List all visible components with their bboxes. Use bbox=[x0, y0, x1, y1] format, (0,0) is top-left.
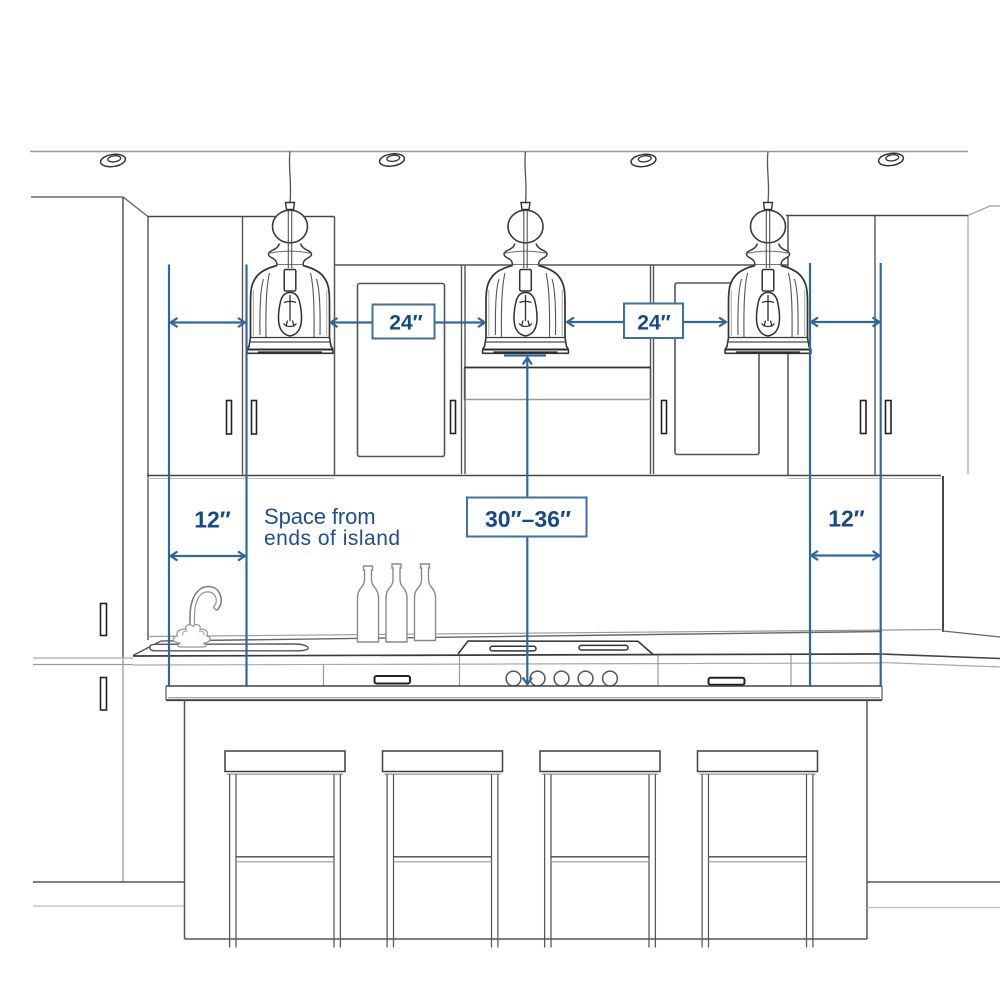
svg-text:12″: 12″ bbox=[828, 506, 865, 532]
svg-text:24″: 24″ bbox=[389, 312, 422, 335]
svg-text:Space from: Space from bbox=[264, 504, 376, 529]
svg-text:24″: 24″ bbox=[637, 312, 670, 335]
svg-text:ends of island: ends of island bbox=[264, 527, 401, 550]
svg-text:12″: 12″ bbox=[194, 507, 231, 533]
svg-text:30″–36″: 30″–36″ bbox=[485, 506, 571, 532]
